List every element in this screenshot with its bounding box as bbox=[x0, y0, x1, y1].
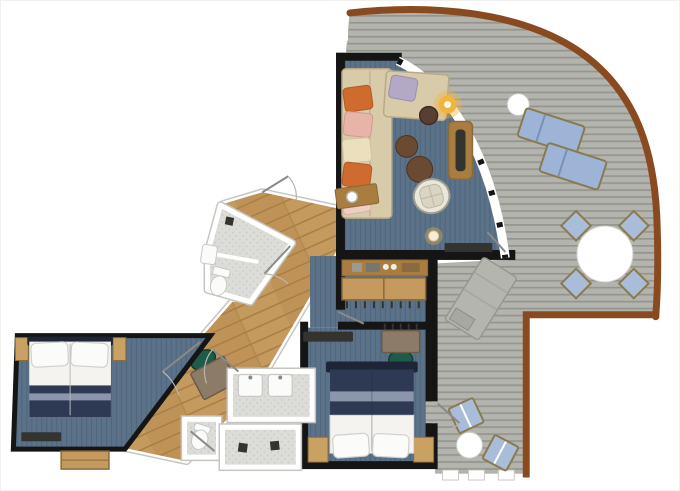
deck-post bbox=[468, 470, 484, 480]
side-table bbox=[420, 107, 438, 125]
bed1-pillow-right bbox=[70, 342, 108, 368]
deck-left-notch bbox=[336, 25, 348, 41]
faucet-left bbox=[248, 375, 252, 379]
bed2-pillow-right bbox=[372, 433, 409, 458]
bed-2 bbox=[326, 362, 418, 459]
cushion-pink-1 bbox=[343, 111, 373, 138]
deck-dining-table bbox=[577, 226, 633, 282]
nightstand-right-1 bbox=[113, 338, 126, 361]
bed1-pillow-left bbox=[31, 342, 69, 368]
vanity-desk bbox=[382, 331, 420, 353]
counter-cup-1 bbox=[383, 264, 389, 270]
shower-room bbox=[222, 427, 298, 467]
wall-lamp-shade bbox=[429, 231, 439, 241]
faucet-right bbox=[278, 375, 282, 379]
closet-bedroom1 bbox=[61, 451, 109, 469]
cushion-cream bbox=[342, 137, 372, 163]
shower-floor bbox=[222, 427, 298, 467]
console-table bbox=[449, 122, 473, 180]
counter-item-1 bbox=[352, 263, 362, 272]
floor-plan bbox=[0, 0, 680, 491]
nightstand-left-2 bbox=[308, 437, 328, 462]
deck-post bbox=[443, 470, 459, 480]
sink-upper bbox=[200, 244, 217, 265]
counter-item-2 bbox=[366, 263, 380, 272]
bed2-pillow-left bbox=[332, 433, 369, 458]
shower-drain-1 bbox=[238, 443, 248, 453]
wall-bedroom2-east-a bbox=[426, 256, 438, 401]
ottoman-2 bbox=[407, 156, 433, 182]
cushion-lavender bbox=[388, 75, 418, 102]
nightstand-right-2 bbox=[414, 437, 434, 462]
floor-lamp-bulb bbox=[444, 101, 451, 108]
deck-post bbox=[498, 470, 514, 480]
bathroom-double-sink bbox=[230, 371, 312, 419]
dressing-corridor-furniture bbox=[342, 260, 428, 305]
wall-lamp bbox=[425, 227, 443, 245]
wardrobe bbox=[342, 278, 426, 300]
counter-tray bbox=[402, 263, 420, 272]
wall-living-north bbox=[336, 53, 402, 61]
shower-drain-upper bbox=[225, 216, 234, 225]
counter-cup-2 bbox=[391, 264, 397, 270]
deck-round-table bbox=[457, 432, 483, 458]
bed-1 bbox=[27, 337, 113, 418]
deck-posts bbox=[443, 470, 515, 480]
tv-console bbox=[445, 243, 493, 252]
console-table-slot bbox=[456, 129, 466, 171]
tv-bedroom2 bbox=[303, 332, 353, 342]
nightstand-left-1 bbox=[15, 338, 28, 361]
ottoman-1 bbox=[396, 135, 418, 157]
table-lamp bbox=[346, 191, 358, 203]
shower-drain-2 bbox=[270, 441, 280, 451]
balcony-door-threshold bbox=[426, 401, 438, 423]
bench-bedroom1 bbox=[21, 432, 61, 441]
cushion-orange-1 bbox=[342, 85, 373, 113]
